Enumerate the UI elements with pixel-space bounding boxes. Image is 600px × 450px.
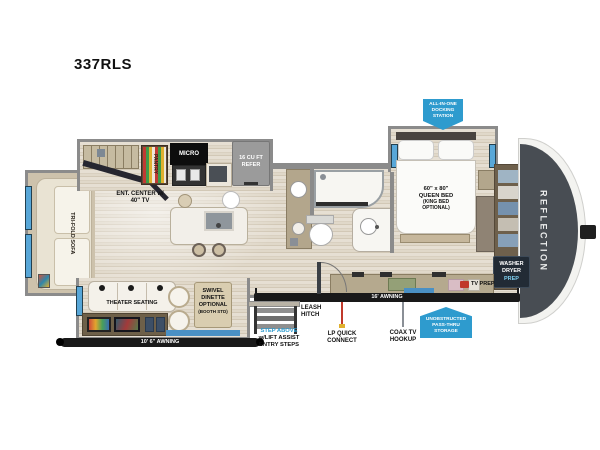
theater-seating-label: THEATER SEATING xyxy=(88,300,176,306)
entry-step xyxy=(257,316,294,321)
wardrobe-shelf xyxy=(498,218,520,231)
counter-sink xyxy=(290,181,307,198)
console-door xyxy=(145,317,154,332)
awning-main-label: 16' AWNING xyxy=(371,294,402,300)
bed-foot-bench xyxy=(400,234,470,243)
shower-head-icon xyxy=(320,174,326,180)
pantry-label: PANTRY xyxy=(151,146,157,182)
bedroom-dresser xyxy=(476,196,496,252)
dryer-line: DRYER xyxy=(494,268,529,275)
coax-line2: HOOKUP xyxy=(383,337,423,344)
leash-line2: HITCH xyxy=(301,312,321,319)
sink-faucet-icon xyxy=(216,223,221,228)
round-chair xyxy=(222,191,240,209)
dinette-line2: DINETTE xyxy=(195,295,231,302)
leash-line1: LEASH xyxy=(301,305,321,312)
end-table xyxy=(38,274,50,288)
vanity-faucet-icon xyxy=(375,225,379,229)
entry-step xyxy=(257,308,294,313)
shower-glass xyxy=(316,202,368,206)
bath-bedroom-wall xyxy=(390,167,394,253)
awning-rear-label: 10' 6" AWNING xyxy=(141,339,180,345)
ent-center-line2: 40" TV xyxy=(100,198,180,205)
counter-appliance xyxy=(209,166,227,182)
bed-option-line2: OPTIONAL) xyxy=(398,206,474,212)
headrest-icon xyxy=(99,285,105,291)
step-above-line: STEP ABOVE xyxy=(250,328,308,335)
ent-center-line1: ENT. CENTER w/ xyxy=(100,191,180,198)
rear-window-icon xyxy=(25,234,32,278)
storage-line3: STORAGE xyxy=(420,329,472,335)
dinette-table: SWIVEL DINETTE OPTIONAL (BOOTH STD) xyxy=(194,282,232,328)
washer-line: WASHER xyxy=(494,261,529,268)
awning-rear-bar: 10' 6" AWNING xyxy=(60,338,260,347)
bar-stool xyxy=(178,194,192,208)
floorplan-title: 337RLS xyxy=(74,56,132,74)
pillow xyxy=(398,140,434,160)
reflection-logo: REFLECTION xyxy=(538,156,549,306)
dinette-line4: (BOOTH STD) xyxy=(195,309,231,315)
ent-center-label: ENT. CENTER w/ 40" TV xyxy=(100,191,180,205)
refer-handle xyxy=(244,182,258,185)
step-above-label: STEP ABOVE w/LIFT ASSIST ENTRY STEPS xyxy=(250,328,308,348)
lp-line1: LP QUICK xyxy=(322,331,362,338)
headrest-icon xyxy=(157,285,163,291)
fireplace-icon xyxy=(87,317,111,332)
queen-bed-label: 60" x 80" QUEEN BED (KING BED OPTIONAL) xyxy=(398,186,474,211)
prep-line: PREP xyxy=(494,276,529,283)
lp-connect-line xyxy=(341,302,343,325)
stove-burner xyxy=(190,169,200,181)
floorplan-canvas: 337RLS TRI-FOLD SOFA PANTRY MICRO 16 CU … xyxy=(0,0,600,450)
microwave: MICRO xyxy=(170,143,208,165)
lp-connect-tip xyxy=(339,324,345,328)
cabinet-item xyxy=(380,272,392,277)
headrest-icon xyxy=(128,285,134,291)
wardrobe-shelf xyxy=(498,170,520,183)
stove-burner xyxy=(176,169,186,181)
cabinet-item xyxy=(97,149,105,157)
wardrobe-shelf xyxy=(498,186,520,199)
nightstand xyxy=(478,170,495,190)
dinette-line3: OPTIONAL xyxy=(195,302,231,309)
counter-item xyxy=(290,238,298,246)
coax-line xyxy=(402,302,404,327)
wardrobe-shelf xyxy=(498,202,520,215)
docking-line3: STATION xyxy=(423,114,463,120)
refer-label-line1: 16 CU FT xyxy=(233,155,269,162)
bar-stool xyxy=(192,243,206,257)
lp-quick-connect-label: LP QUICK CONNECT xyxy=(322,331,362,345)
wardrobe-shelf xyxy=(498,234,520,247)
refer-label-line2: REFER xyxy=(233,162,269,169)
coax-tv-hookup-label: COAX TV HOOKUP xyxy=(383,330,423,344)
headboard xyxy=(396,132,476,140)
cabinet-item xyxy=(352,272,364,277)
bar-stool xyxy=(212,243,226,257)
refrigerator: 16 CU FT REFER xyxy=(232,141,270,186)
swivel-dinette-chair xyxy=(168,286,190,308)
tv-screen-icon xyxy=(114,317,140,332)
blue-rug xyxy=(166,330,240,336)
coax-line1: COAX TV xyxy=(383,330,423,337)
dinette-line1: SWIVEL xyxy=(195,288,231,295)
awning-end-cap xyxy=(56,338,64,346)
entry-steps-line: ENTRY STEPS xyxy=(250,342,308,349)
rear-window-icon xyxy=(25,186,32,230)
pillow xyxy=(438,140,474,160)
theater-window-icon xyxy=(76,286,83,316)
swivel-dinette-chair xyxy=(168,310,190,332)
counter-sink-small xyxy=(292,222,305,235)
island-sink xyxy=(204,211,234,231)
washer-dryer-prep-label: WASHER DRYER PREP xyxy=(493,256,530,288)
bed-size-line: 60" x 80" xyxy=(398,186,474,193)
hitch-pin-icon xyxy=(580,225,596,239)
micro-label: MICRO xyxy=(179,151,199,157)
toilet xyxy=(309,223,333,246)
lift-assist-line: w/LIFT ASSIST xyxy=(250,335,308,342)
tv-prep-icon xyxy=(460,281,469,288)
tri-fold-sofa-label: TRI-FOLD SOFA xyxy=(69,193,75,273)
cabinet-item xyxy=(432,272,446,277)
console-door xyxy=(156,317,165,332)
leash-hitch-label: LEASH HITCH xyxy=(301,305,321,319)
lp-line2: CONNECT xyxy=(322,338,362,345)
tv-prep-label: TV PREP xyxy=(471,281,495,287)
pass-thru-storage-badge: UNOBSTRUCTED PASS-THRU STORAGE xyxy=(420,307,472,338)
